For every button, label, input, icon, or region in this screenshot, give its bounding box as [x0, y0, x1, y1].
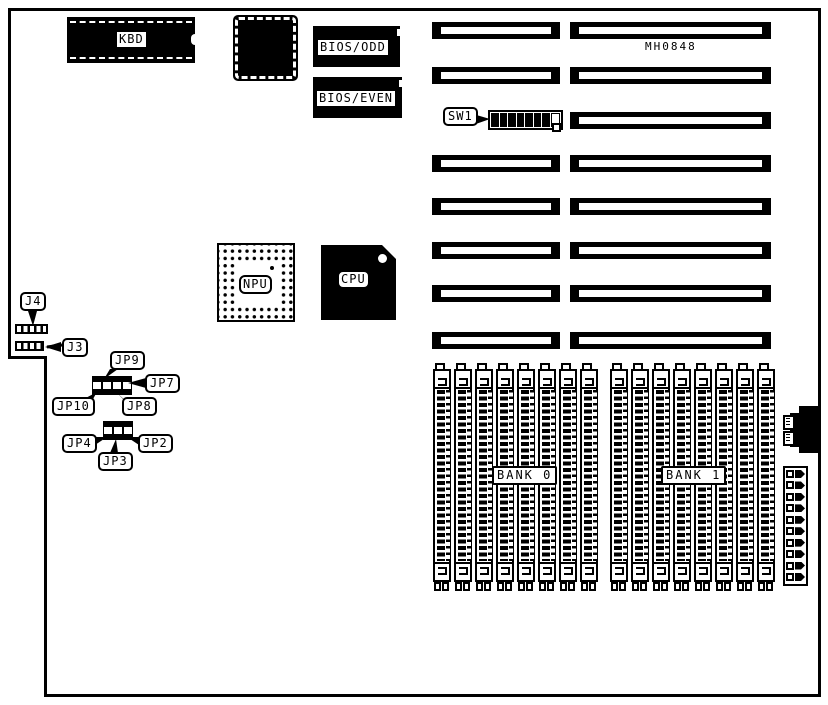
j4-connector	[15, 324, 48, 334]
pin-header-row	[786, 562, 805, 571]
simm-top-latch	[631, 369, 649, 389]
simm-pin-column-left	[614, 390, 622, 561]
simm-pin-column-left	[437, 390, 445, 561]
simm-top-latch	[580, 369, 598, 389]
latch-hook-icon	[438, 567, 447, 575]
simm-top-latch	[559, 369, 577, 389]
simm-foot	[484, 582, 491, 591]
dip-switch-position	[517, 113, 525, 127]
simm-socket	[454, 363, 472, 591]
jumper-block	[123, 421, 133, 440]
pin-header-row	[786, 481, 805, 490]
simm-foot	[505, 582, 512, 591]
dip-switch-position	[542, 113, 550, 127]
simm-bottom-latch	[454, 562, 472, 582]
simm-bottom-latch	[715, 562, 733, 582]
pin-pad	[786, 470, 794, 478]
expansion-slot	[570, 285, 771, 302]
pin-pad	[786, 550, 794, 558]
simm-foot	[518, 582, 525, 591]
simm-foot	[716, 582, 723, 591]
simm-foot	[589, 582, 596, 591]
simm-bottom-latch	[694, 562, 712, 582]
simm-bottom-latch	[736, 562, 754, 582]
simm-socket	[559, 363, 577, 591]
latch-hook-icon	[657, 567, 666, 575]
simm-foot	[581, 582, 588, 591]
simm-bottom-latch	[433, 562, 451, 582]
npu-label: NPU	[239, 275, 272, 294]
pin-header-row	[786, 516, 805, 525]
din-connector-tab	[783, 431, 795, 446]
simm-feet	[476, 582, 493, 591]
simm-pin-column-right	[593, 390, 597, 561]
simm-foot	[661, 582, 668, 591]
pin-header	[783, 466, 808, 586]
jp4-label: JP4	[62, 434, 97, 453]
simm-bottom-latch	[631, 562, 649, 582]
simm-foot	[568, 582, 575, 591]
bios-even-chip: BIOS/EVEN	[313, 77, 402, 118]
latch-hook-icon	[720, 378, 729, 386]
simm-feet	[758, 582, 775, 591]
simm-pin-column-left	[740, 390, 748, 561]
pin-pad	[786, 504, 794, 512]
latch-hook-icon	[543, 378, 552, 386]
simm-pin-column-right	[572, 390, 576, 561]
pin-pad	[786, 527, 794, 535]
latch-hook-icon	[501, 567, 510, 575]
jp7-label: JP7	[145, 374, 180, 393]
pin-arrow-icon	[795, 550, 805, 558]
pin-arrow-icon	[795, 470, 805, 478]
simm-foot	[526, 582, 533, 591]
simm-top-latch	[517, 369, 535, 389]
simm-pin-column-left	[458, 390, 466, 561]
pin-header-row	[786, 573, 805, 582]
simm-socket	[757, 363, 775, 591]
simm-foot	[455, 582, 462, 591]
expansion-slot	[570, 198, 771, 215]
expansion-slot	[432, 67, 560, 84]
simm-pin-column-right	[728, 390, 732, 561]
pin-pad	[786, 493, 794, 501]
sw1-label: SW1	[443, 107, 478, 126]
latch-hook-icon	[636, 378, 645, 386]
simm-top-latch	[715, 369, 733, 389]
simm-pin-column-right	[770, 390, 774, 561]
simm-bottom-latch	[517, 562, 535, 582]
bank0-label: BANK 0	[492, 466, 557, 485]
simm-top-latch	[673, 369, 691, 389]
simm-socket	[610, 363, 628, 591]
board-part-number: MH0848	[645, 40, 697, 53]
pin-pad	[786, 573, 794, 581]
simm-pin-body	[757, 389, 775, 562]
latch-hook-icon	[636, 567, 645, 575]
latch-hook-icon	[480, 567, 489, 575]
bios-even-label: BIOS/EVEN	[315, 89, 397, 108]
jumper-block	[103, 421, 113, 440]
simm-top-latch	[757, 369, 775, 389]
latch-hook-icon	[678, 378, 687, 386]
jp9-label: JP9	[110, 351, 145, 370]
simm-foot	[632, 582, 639, 591]
latch-hook-icon	[699, 567, 708, 575]
simm-bottom-latch	[496, 562, 514, 582]
dip-switch-slider	[552, 123, 561, 132]
latch-hook-icon	[438, 378, 447, 386]
expansion-slot	[570, 67, 771, 84]
pin-arrow-icon	[795, 516, 805, 524]
simm-socket	[475, 363, 493, 591]
jp10-label: JP10	[52, 397, 95, 416]
simm-feet	[518, 582, 535, 591]
simm-feet	[737, 582, 754, 591]
simm-pin-column-left	[635, 390, 643, 561]
simm-feet	[695, 582, 712, 591]
dip-switch-position	[525, 113, 533, 127]
kbd-chip-label: KBD	[116, 31, 147, 48]
expansion-slot	[570, 155, 771, 172]
latch-hook-icon	[762, 567, 771, 575]
simm-pin-body	[454, 389, 472, 562]
latch-hook-icon	[543, 567, 552, 575]
expansion-slot	[432, 285, 560, 302]
simm-bottom-latch	[757, 562, 775, 582]
dip-switch-position	[534, 113, 542, 127]
simm-top-latch	[694, 369, 712, 389]
simm-foot	[442, 582, 449, 591]
latch-hook-icon	[741, 378, 750, 386]
simm-top-latch	[610, 369, 628, 389]
dip-switch-position	[508, 113, 516, 127]
expansion-slot	[432, 242, 560, 259]
npu-socket-hole: NPU	[238, 263, 278, 305]
jp3-label: JP3	[98, 452, 133, 471]
simm-top-latch	[652, 369, 670, 389]
dip-switch-position	[500, 113, 508, 127]
latch-hook-icon	[741, 567, 750, 575]
bios-even-notch	[399, 80, 402, 87]
simm-feet	[455, 582, 472, 591]
simm-top-latch	[433, 369, 451, 389]
expansion-slot	[570, 112, 771, 129]
kbd-chip-pins-bottom	[70, 57, 192, 59]
simm-feet	[653, 582, 670, 591]
simm-feet	[497, 582, 514, 591]
expansion-slot	[432, 22, 560, 39]
latch-hook-icon	[585, 567, 594, 575]
simm-top-latch	[496, 369, 514, 389]
simm-foot	[611, 582, 618, 591]
pin-header-row	[786, 493, 805, 502]
simm-pin-body	[736, 389, 754, 562]
pin-pad	[786, 516, 794, 524]
latch-hook-icon	[699, 378, 708, 386]
simm-feet	[716, 582, 733, 591]
j3-connector	[15, 341, 44, 351]
simm-socket	[736, 363, 754, 591]
latch-hook-icon	[480, 378, 489, 386]
latch-hook-icon	[564, 378, 573, 386]
simm-foot	[560, 582, 567, 591]
expansion-slot	[432, 332, 560, 349]
simm-foot	[703, 582, 710, 591]
bank1-label: BANK 1	[661, 466, 726, 485]
simm-bottom-latch	[610, 562, 628, 582]
simm-foot	[674, 582, 681, 591]
jp8-label: JP8	[122, 397, 157, 416]
pin-header-row	[786, 539, 805, 548]
pin-pad	[786, 481, 794, 489]
latch-hook-icon	[501, 378, 510, 386]
bios-odd-chip: BIOS/ODD	[313, 26, 400, 67]
simm-bottom-latch	[475, 562, 493, 582]
kbd-chip-notch	[191, 34, 195, 45]
kbd-chip: KBD	[67, 17, 195, 63]
simm-pin-column-right	[623, 390, 627, 561]
latch-hook-icon	[522, 567, 531, 575]
qfp-chip	[233, 15, 298, 81]
simm-foot	[547, 582, 554, 591]
pin-header-row	[786, 550, 805, 559]
simm-pin-body	[580, 389, 598, 562]
simm-pin-column-right	[749, 390, 753, 561]
simm-top-latch	[475, 369, 493, 389]
latch-hook-icon	[615, 378, 624, 386]
simm-foot	[724, 582, 731, 591]
simm-pin-body	[631, 389, 649, 562]
pin-arrow-icon	[795, 493, 805, 501]
bios-odd-label: BIOS/ODD	[316, 38, 390, 57]
cpu-label: CPU	[337, 270, 370, 289]
cpu-chip: CPU	[321, 245, 396, 320]
pin-pad	[786, 539, 794, 547]
j3-pointer-line	[47, 345, 62, 347]
simm-pin-column-left	[584, 390, 592, 561]
cpu-pin1-dot	[378, 254, 387, 263]
bios-odd-notch	[397, 29, 400, 36]
latch-hook-icon	[762, 378, 771, 386]
latch-hook-icon	[657, 378, 666, 386]
simm-foot	[476, 582, 483, 591]
simm-foot	[653, 582, 660, 591]
jumper-block	[122, 376, 132, 395]
simm-feet	[611, 582, 628, 591]
simm-pin-body	[610, 389, 628, 562]
pin-header-row	[786, 470, 805, 479]
pin-header-row	[786, 527, 805, 536]
simm-feet	[581, 582, 598, 591]
simm-feet	[674, 582, 691, 591]
simm-foot	[682, 582, 689, 591]
simm-foot	[745, 582, 752, 591]
pin-arrow-icon	[795, 539, 805, 547]
simm-pin-body	[559, 389, 577, 562]
npu-socket: NPU	[217, 243, 295, 322]
simm-feet	[560, 582, 577, 591]
simm-pin-column-right	[644, 390, 648, 561]
simm-foot	[539, 582, 546, 591]
expansion-slot	[432, 155, 560, 172]
pin-arrow-icon	[795, 504, 805, 512]
latch-hook-icon	[585, 378, 594, 386]
jp2-label: JP2	[138, 434, 173, 453]
simm-foot	[463, 582, 470, 591]
pin-arrow-icon	[795, 562, 805, 570]
simm-bottom-latch	[580, 562, 598, 582]
latch-hook-icon	[678, 567, 687, 575]
simm-pin-column-right	[446, 390, 450, 561]
latch-hook-icon	[459, 567, 468, 575]
j3-label: J3	[62, 338, 88, 357]
npu-pin1-dot	[270, 266, 274, 270]
simm-foot	[497, 582, 504, 591]
simm-top-latch	[538, 369, 556, 389]
simm-bottom-latch	[538, 562, 556, 582]
simm-foot	[640, 582, 647, 591]
din-connector	[799, 406, 821, 453]
simm-pin-column-left	[563, 390, 571, 561]
simm-bottom-latch	[559, 562, 577, 582]
expansion-slot	[432, 198, 560, 215]
expansion-slot	[570, 22, 771, 39]
simm-foot	[619, 582, 626, 591]
simm-socket	[631, 363, 649, 591]
latch-hook-icon	[522, 378, 531, 386]
simm-top-latch	[454, 369, 472, 389]
pin-arrow-icon	[795, 481, 805, 489]
latch-hook-icon	[459, 378, 468, 386]
simm-foot	[434, 582, 441, 591]
simm-bottom-latch	[652, 562, 670, 582]
simm-pin-column-right	[467, 390, 471, 561]
simm-pin-body	[433, 389, 451, 562]
latch-hook-icon	[564, 567, 573, 575]
motherboard-diagram: KBD BIOS/ODD BIOS/EVEN MH0848 SW1	[0, 0, 828, 705]
expansion-slot	[570, 332, 771, 349]
simm-pin-body	[475, 389, 493, 562]
jumper-block	[112, 376, 122, 395]
simm-pin-column-left	[479, 390, 487, 561]
j3-pointer-arrow	[45, 342, 61, 352]
simm-foot	[766, 582, 773, 591]
jp3-pointer	[110, 439, 118, 453]
pin-header-row	[786, 504, 805, 513]
latch-hook-icon	[615, 567, 624, 575]
jumper-block	[92, 376, 102, 395]
simm-foot	[737, 582, 744, 591]
simm-bottom-latch	[673, 562, 691, 582]
jumper-block	[113, 421, 123, 440]
j4-label: J4	[20, 292, 46, 311]
kbd-chip-pins-top	[70, 21, 192, 23]
simm-feet	[434, 582, 451, 591]
dip-switch-position	[491, 113, 499, 127]
simm-pin-column-left	[761, 390, 769, 561]
pin-arrow-icon	[795, 573, 805, 581]
simm-feet	[632, 582, 649, 591]
pin-pad	[786, 562, 794, 570]
simm-foot	[758, 582, 765, 591]
latch-hook-icon	[720, 567, 729, 575]
simm-socket	[433, 363, 451, 591]
pin-arrow-icon	[795, 527, 805, 535]
simm-feet	[539, 582, 556, 591]
din-connector-tab	[783, 415, 795, 430]
expansion-slot	[570, 242, 771, 259]
jumper-block	[102, 376, 112, 395]
simm-top-latch	[736, 369, 754, 389]
simm-foot	[695, 582, 702, 591]
simm-socket	[580, 363, 598, 591]
